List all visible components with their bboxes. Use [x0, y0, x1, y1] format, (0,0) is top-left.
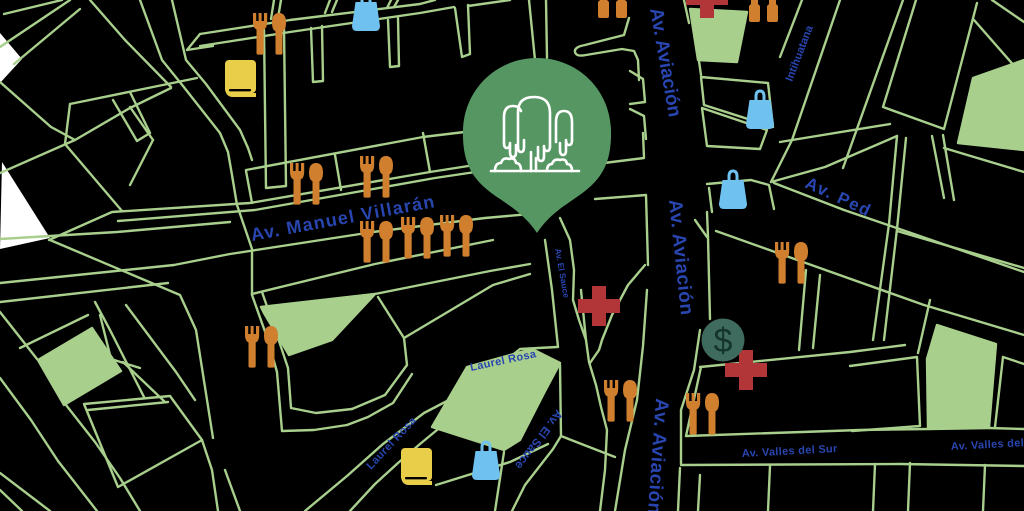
svg-text:$: $	[714, 322, 733, 360]
